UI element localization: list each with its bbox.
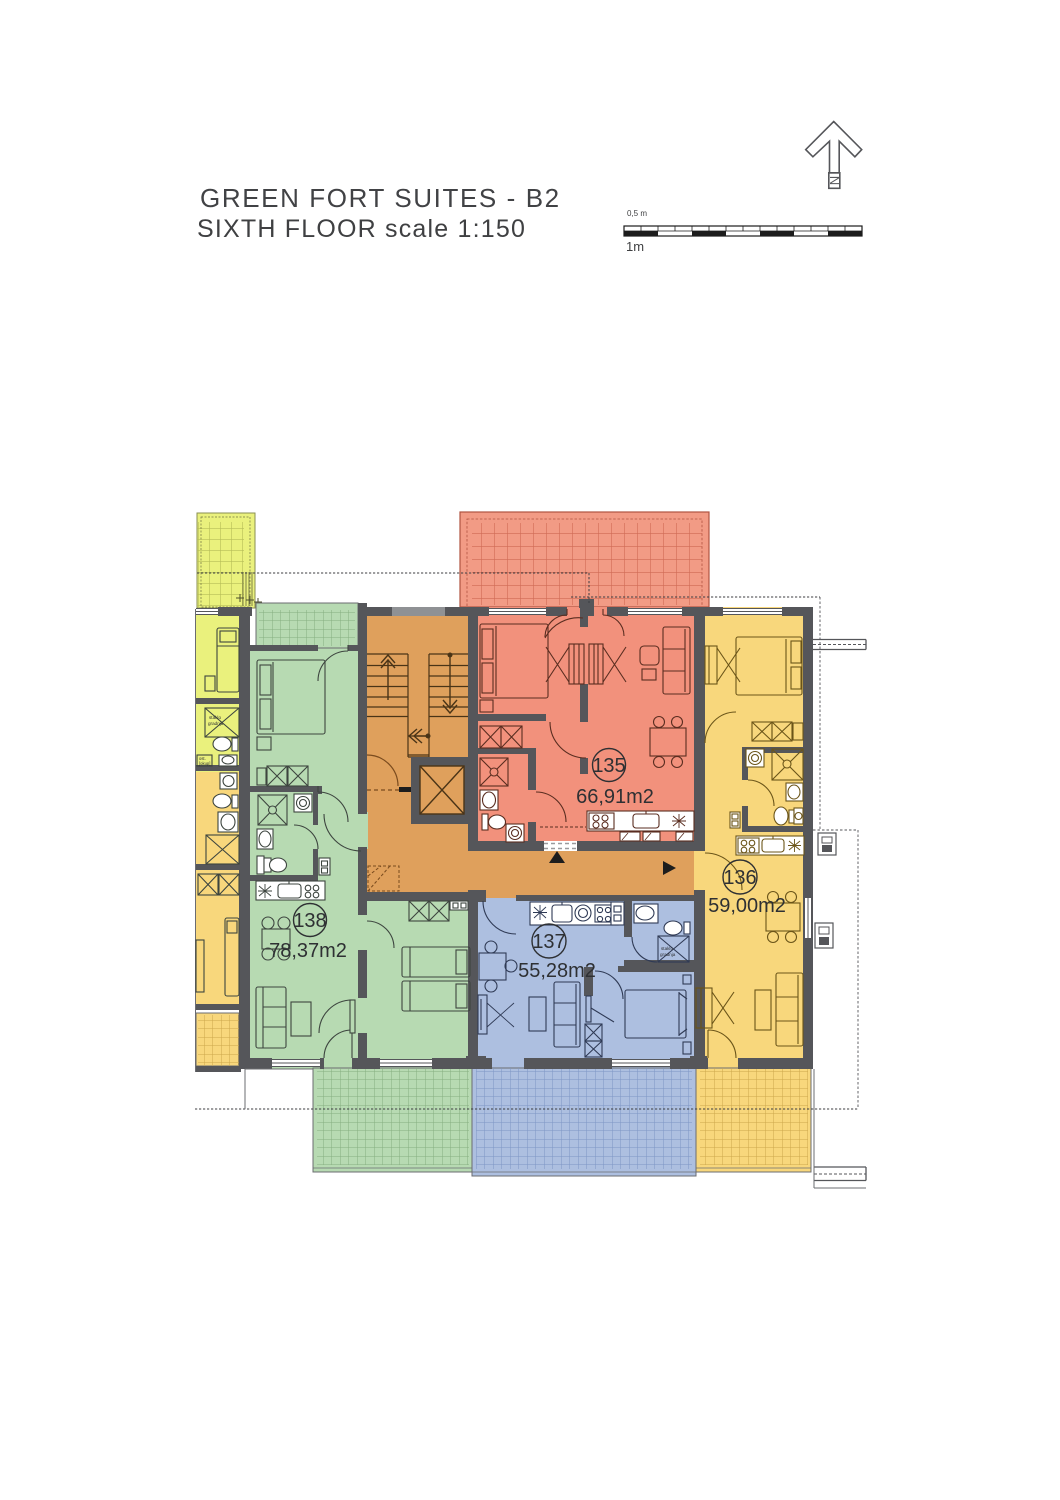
svg-text:55,28m2: 55,28m2 — [518, 960, 596, 982]
svg-text:1m: 1m — [626, 239, 644, 254]
svg-text:gradnja: gradnja — [208, 721, 224, 726]
svg-text:N: N — [827, 176, 842, 185]
svg-text:[okup]: [okup] — [199, 761, 210, 766]
svg-text:SIXTH FLOOR scale 1:150: SIXTH FLOOR scale 1:150 — [197, 215, 526, 243]
svg-text:GREEN FORT SUITES - B2: GREEN FORT SUITES - B2 — [200, 183, 561, 213]
svg-text:135: 135 — [592, 755, 625, 777]
svg-text:59,00m2: 59,00m2 — [708, 895, 786, 917]
svg-text:78,37m2: 78,37m2 — [269, 940, 347, 962]
svg-text:136: 136 — [723, 867, 756, 889]
svg-text:staklo: staklo — [209, 715, 221, 720]
svg-text:138: 138 — [293, 910, 326, 932]
svg-text:137: 137 — [532, 931, 565, 953]
svg-text:staklo: staklo — [661, 946, 673, 951]
svg-text:gradnja: gradnja — [660, 952, 676, 957]
svg-text:0,5 m: 0,5 m — [627, 209, 647, 218]
svg-text:66,91m2: 66,91m2 — [576, 786, 654, 808]
